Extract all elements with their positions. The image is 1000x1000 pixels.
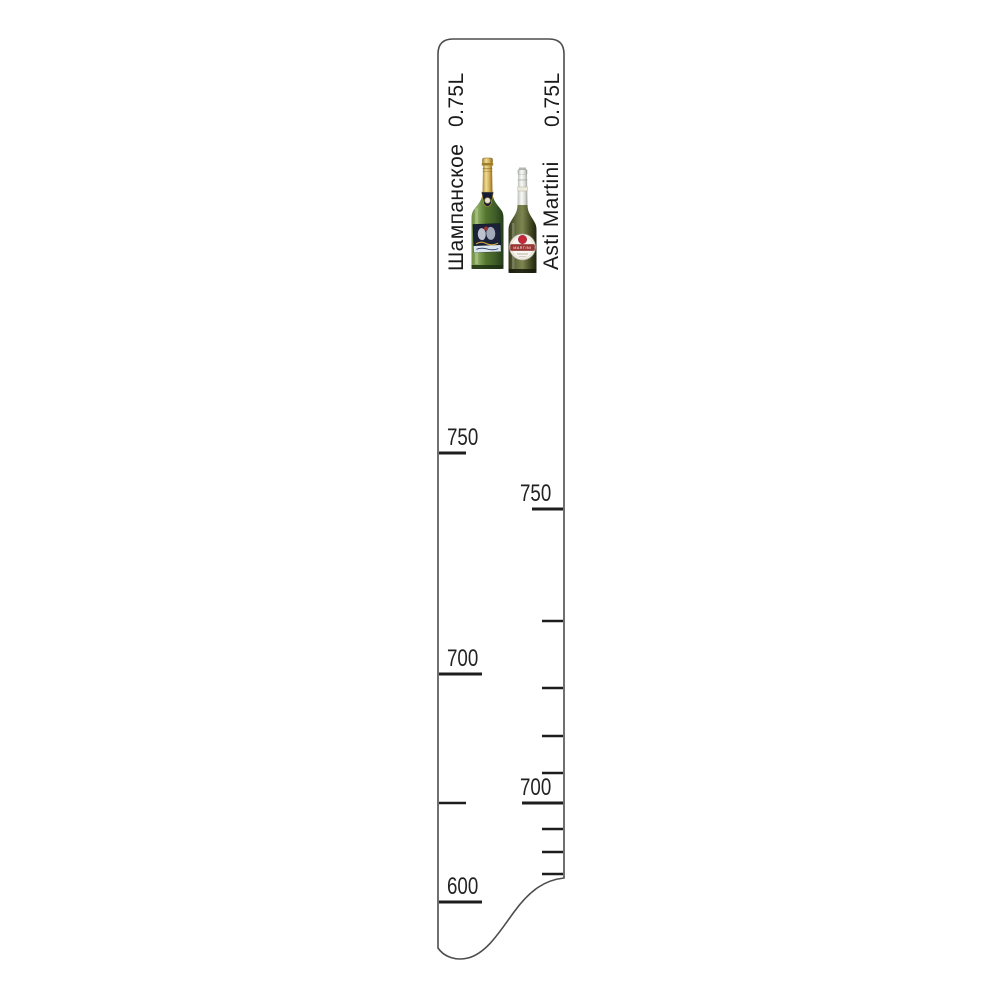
martini-foil [518,168,528,206]
tick-label: 700 [447,647,478,671]
bar-ruler-image: 0.75L Шампанское 0.75L Asti Martini [0,0,1000,1000]
tick-label: 700 [520,776,551,800]
right-product-label: Asti Martini [540,161,564,270]
ruler-graphic [0,0,1000,1000]
left-product-label: Шампанское [445,144,469,271]
tick-label: 750 [520,482,551,506]
tick-label: 750 [447,426,478,450]
martini-band-text: MARTINI [513,246,531,250]
champagne-label [473,224,501,253]
right-volume-label: 0.75L [541,72,565,127]
tick-label: 600 [447,875,478,899]
left-volume-label: 0.75L [445,72,469,127]
martini-red-ball [518,235,526,243]
martini-round-label: MARTINI [510,234,536,260]
champagne-base [472,265,504,269]
martini-base [509,269,537,273]
champagne-foil [482,158,493,192]
asti-martini-bottle-image: MARTINI [505,167,540,277]
champagne-bottle-image [467,156,507,274]
